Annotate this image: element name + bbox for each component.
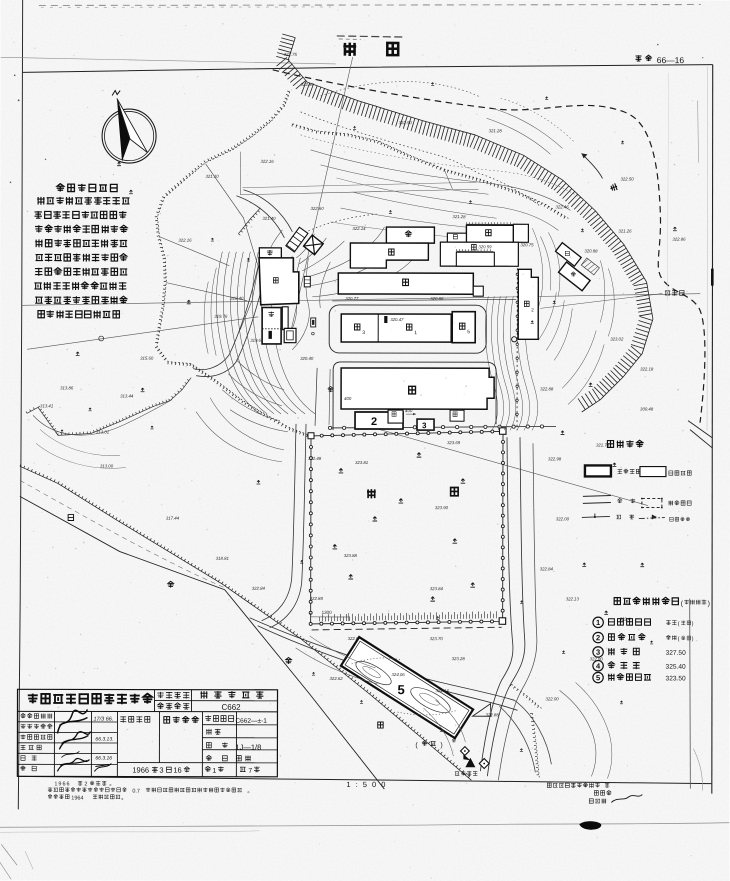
svg-text:400: 400	[344, 396, 352, 401]
svg-text:1: 1	[212, 768, 216, 775]
svg-text:322.86: 322.86	[672, 237, 686, 242]
svg-text:300.48: 300.48	[640, 407, 654, 412]
svg-text:0.7: 0.7	[132, 789, 140, 795]
svg-text:320.77: 320.77	[345, 296, 359, 301]
svg-text:320.40: 320.40	[300, 356, 314, 361]
svg-text:322.00: 322.00	[545, 696, 559, 701]
svg-text:1J—1/8: 1J—1/8	[235, 743, 261, 752]
svg-text:322.18: 322.18	[640, 367, 654, 372]
svg-text:320.59: 320.59	[478, 244, 492, 249]
svg-text:2: 2	[371, 416, 377, 428]
svg-text:321.40: 321.40	[262, 216, 276, 221]
svg-text:322.62: 322.62	[330, 676, 344, 681]
svg-text:): )	[708, 601, 710, 608]
svg-text:324.14: 324.14	[436, 688, 450, 693]
svg-text:。: 。	[247, 789, 253, 795]
svg-text:320.88: 320.88	[584, 248, 598, 253]
svg-text:(: (	[678, 621, 680, 627]
svg-text:1966: 1966	[54, 781, 70, 787]
svg-text:322.84: 322.84	[252, 586, 266, 591]
svg-text:322.48: 322.48	[308, 456, 322, 461]
svg-text:320.75: 320.75	[520, 242, 534, 247]
svg-text:322.90: 322.90	[399, 120, 413, 125]
svg-text:2: 2	[596, 633, 600, 642]
svg-text:320.47: 320.47	[390, 317, 404, 322]
svg-text:315.60: 315.60	[140, 356, 154, 361]
svg-text:1: 1	[596, 618, 600, 627]
svg-text:322.88: 322.88	[485, 712, 499, 717]
svg-text:。: 。	[109, 782, 115, 788]
svg-text:323.81: 323.81	[355, 460, 369, 465]
svg-text:66—16: 66—16	[657, 55, 685, 65]
svg-text:322.88: 322.88	[310, 596, 324, 601]
svg-text:322.6: 322.6	[348, 636, 359, 641]
svg-text:321.28: 321.28	[489, 128, 503, 133]
svg-text:322.84: 322.84	[540, 566, 554, 571]
svg-text:325.40: 325.40	[666, 664, 687, 671]
svg-text:313.41: 313.41	[40, 403, 54, 408]
svg-text:322.00: 322.00	[556, 516, 570, 521]
svg-text:): )	[692, 636, 694, 642]
svg-text:1: 1	[414, 330, 417, 336]
svg-text:3: 3	[159, 766, 163, 775]
svg-text:1964: 1964	[71, 795, 83, 801]
svg-text:323.88: 323.88	[344, 553, 358, 558]
svg-text:400: 400	[405, 408, 413, 413]
svg-text:66.3.16: 66.3.16	[95, 755, 112, 761]
svg-text:322.88: 322.88	[540, 386, 554, 391]
svg-text:): )	[692, 621, 694, 627]
svg-text:317.44: 317.44	[166, 516, 180, 521]
svg-text:。: 。	[121, 796, 127, 802]
svg-text:C662: C662	[221, 703, 241, 712]
svg-text:5: 5	[398, 682, 405, 697]
svg-text:322.16: 322.16	[261, 159, 275, 164]
svg-text:3: 3	[596, 648, 600, 657]
svg-text:3: 3	[422, 421, 427, 430]
svg-text:17/3 66.: 17/3 66.	[93, 716, 113, 722]
svg-text:313.01: 313.01	[96, 429, 110, 434]
svg-text:(: (	[678, 636, 680, 642]
svg-text:324.06: 324.06	[392, 672, 406, 677]
svg-text:2: 2	[84, 781, 87, 787]
svg-text:323.90: 323.90	[435, 505, 449, 510]
svg-text:1966: 1966	[132, 766, 149, 775]
svg-text:322.86: 322.86	[301, 82, 315, 87]
svg-text:321.26: 321.26	[618, 228, 632, 233]
svg-text:322.13: 322.13	[566, 596, 580, 601]
svg-text:322.98: 322.98	[548, 456, 562, 461]
svg-text:C662—±-1: C662—±-1	[235, 718, 267, 725]
svg-text:321.10: 321.10	[206, 174, 220, 179]
svg-text:322.50: 322.50	[620, 176, 634, 181]
svg-text:16: 16	[173, 766, 181, 775]
svg-text:323.69: 323.69	[447, 440, 461, 445]
svg-text:322.75: 322.75	[284, 52, 298, 57]
svg-text:320.86: 320.86	[430, 296, 444, 301]
svg-text:318.81: 318.81	[216, 556, 230, 561]
svg-text:1300: 1300	[322, 610, 333, 615]
svg-text:323.28: 323.28	[452, 656, 466, 661]
svg-text:313.00: 313.00	[100, 463, 114, 468]
svg-text:323.02: 323.02	[610, 336, 624, 341]
svg-text:1 : 5 0 0: 1 : 5 0 0	[346, 780, 387, 789]
svg-text:323.84: 323.84	[430, 586, 444, 591]
svg-text:322.60: 322.60	[310, 206, 324, 211]
svg-text:): )	[440, 742, 442, 749]
svg-text:318.40: 318.40	[230, 296, 244, 301]
svg-text:3: 3	[362, 330, 365, 336]
svg-text:313.44: 313.44	[120, 394, 134, 399]
svg-text:321.28: 321.28	[452, 214, 466, 219]
svg-text:323.70: 323.70	[430, 636, 444, 641]
svg-text:323.50: 323.50	[666, 675, 687, 682]
svg-text:313.86: 313.86	[60, 385, 74, 390]
svg-text:7: 7	[248, 768, 252, 775]
svg-text:5: 5	[596, 673, 600, 682]
svg-text:322.46: 322.46	[555, 204, 569, 209]
svg-text:319.61: 319.61	[250, 338, 264, 343]
svg-text:327.50: 327.50	[666, 650, 687, 657]
svg-text:322.14: 322.14	[352, 226, 366, 231]
svg-text:319.76: 319.76	[214, 314, 228, 319]
svg-text:5: 5	[467, 329, 470, 335]
svg-text:66.3.13.: 66.3.13.	[95, 736, 113, 742]
svg-text:322.16: 322.16	[178, 238, 192, 243]
